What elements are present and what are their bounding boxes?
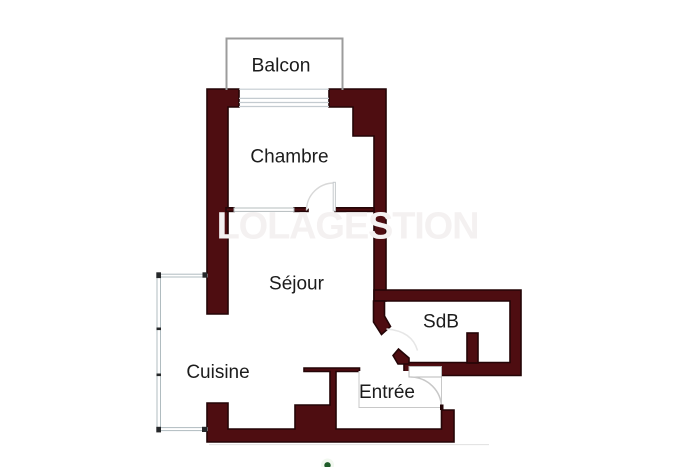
svg-text:Cuisine: Cuisine: [186, 362, 249, 383]
svg-text:Entrée: Entrée: [359, 382, 415, 403]
svg-text:Balcon: Balcon: [252, 56, 311, 77]
svg-text:Chambre: Chambre: [250, 147, 328, 168]
svg-text:Séjour: Séjour: [269, 273, 325, 294]
svg-text:SdB: SdB: [423, 312, 459, 333]
